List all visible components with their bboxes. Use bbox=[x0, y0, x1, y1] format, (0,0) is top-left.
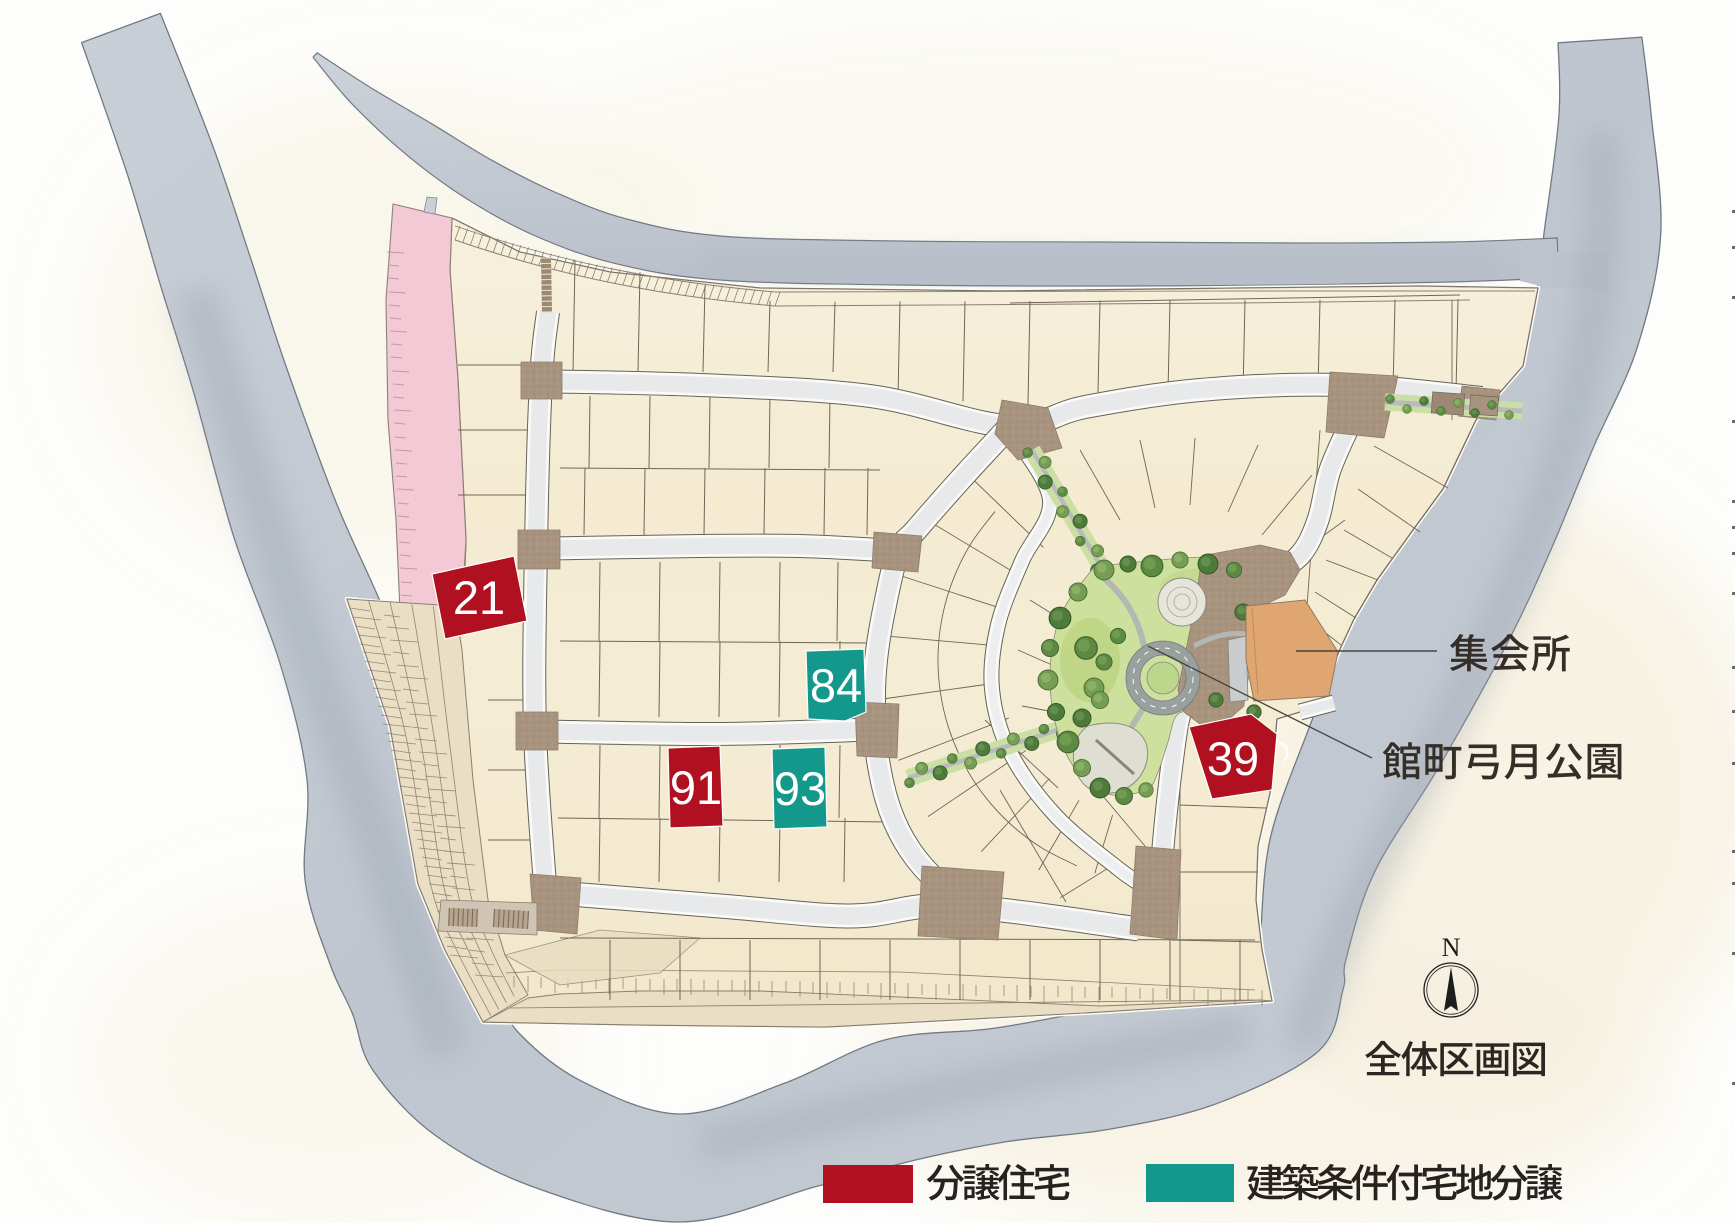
svg-text:N: N bbox=[1442, 933, 1461, 962]
svg-text:39: 39 bbox=[1207, 732, 1259, 785]
svg-text:93: 93 bbox=[774, 762, 826, 815]
svg-text:84: 84 bbox=[810, 659, 862, 712]
svg-text:21: 21 bbox=[453, 571, 505, 624]
svg-text:91: 91 bbox=[670, 761, 722, 814]
